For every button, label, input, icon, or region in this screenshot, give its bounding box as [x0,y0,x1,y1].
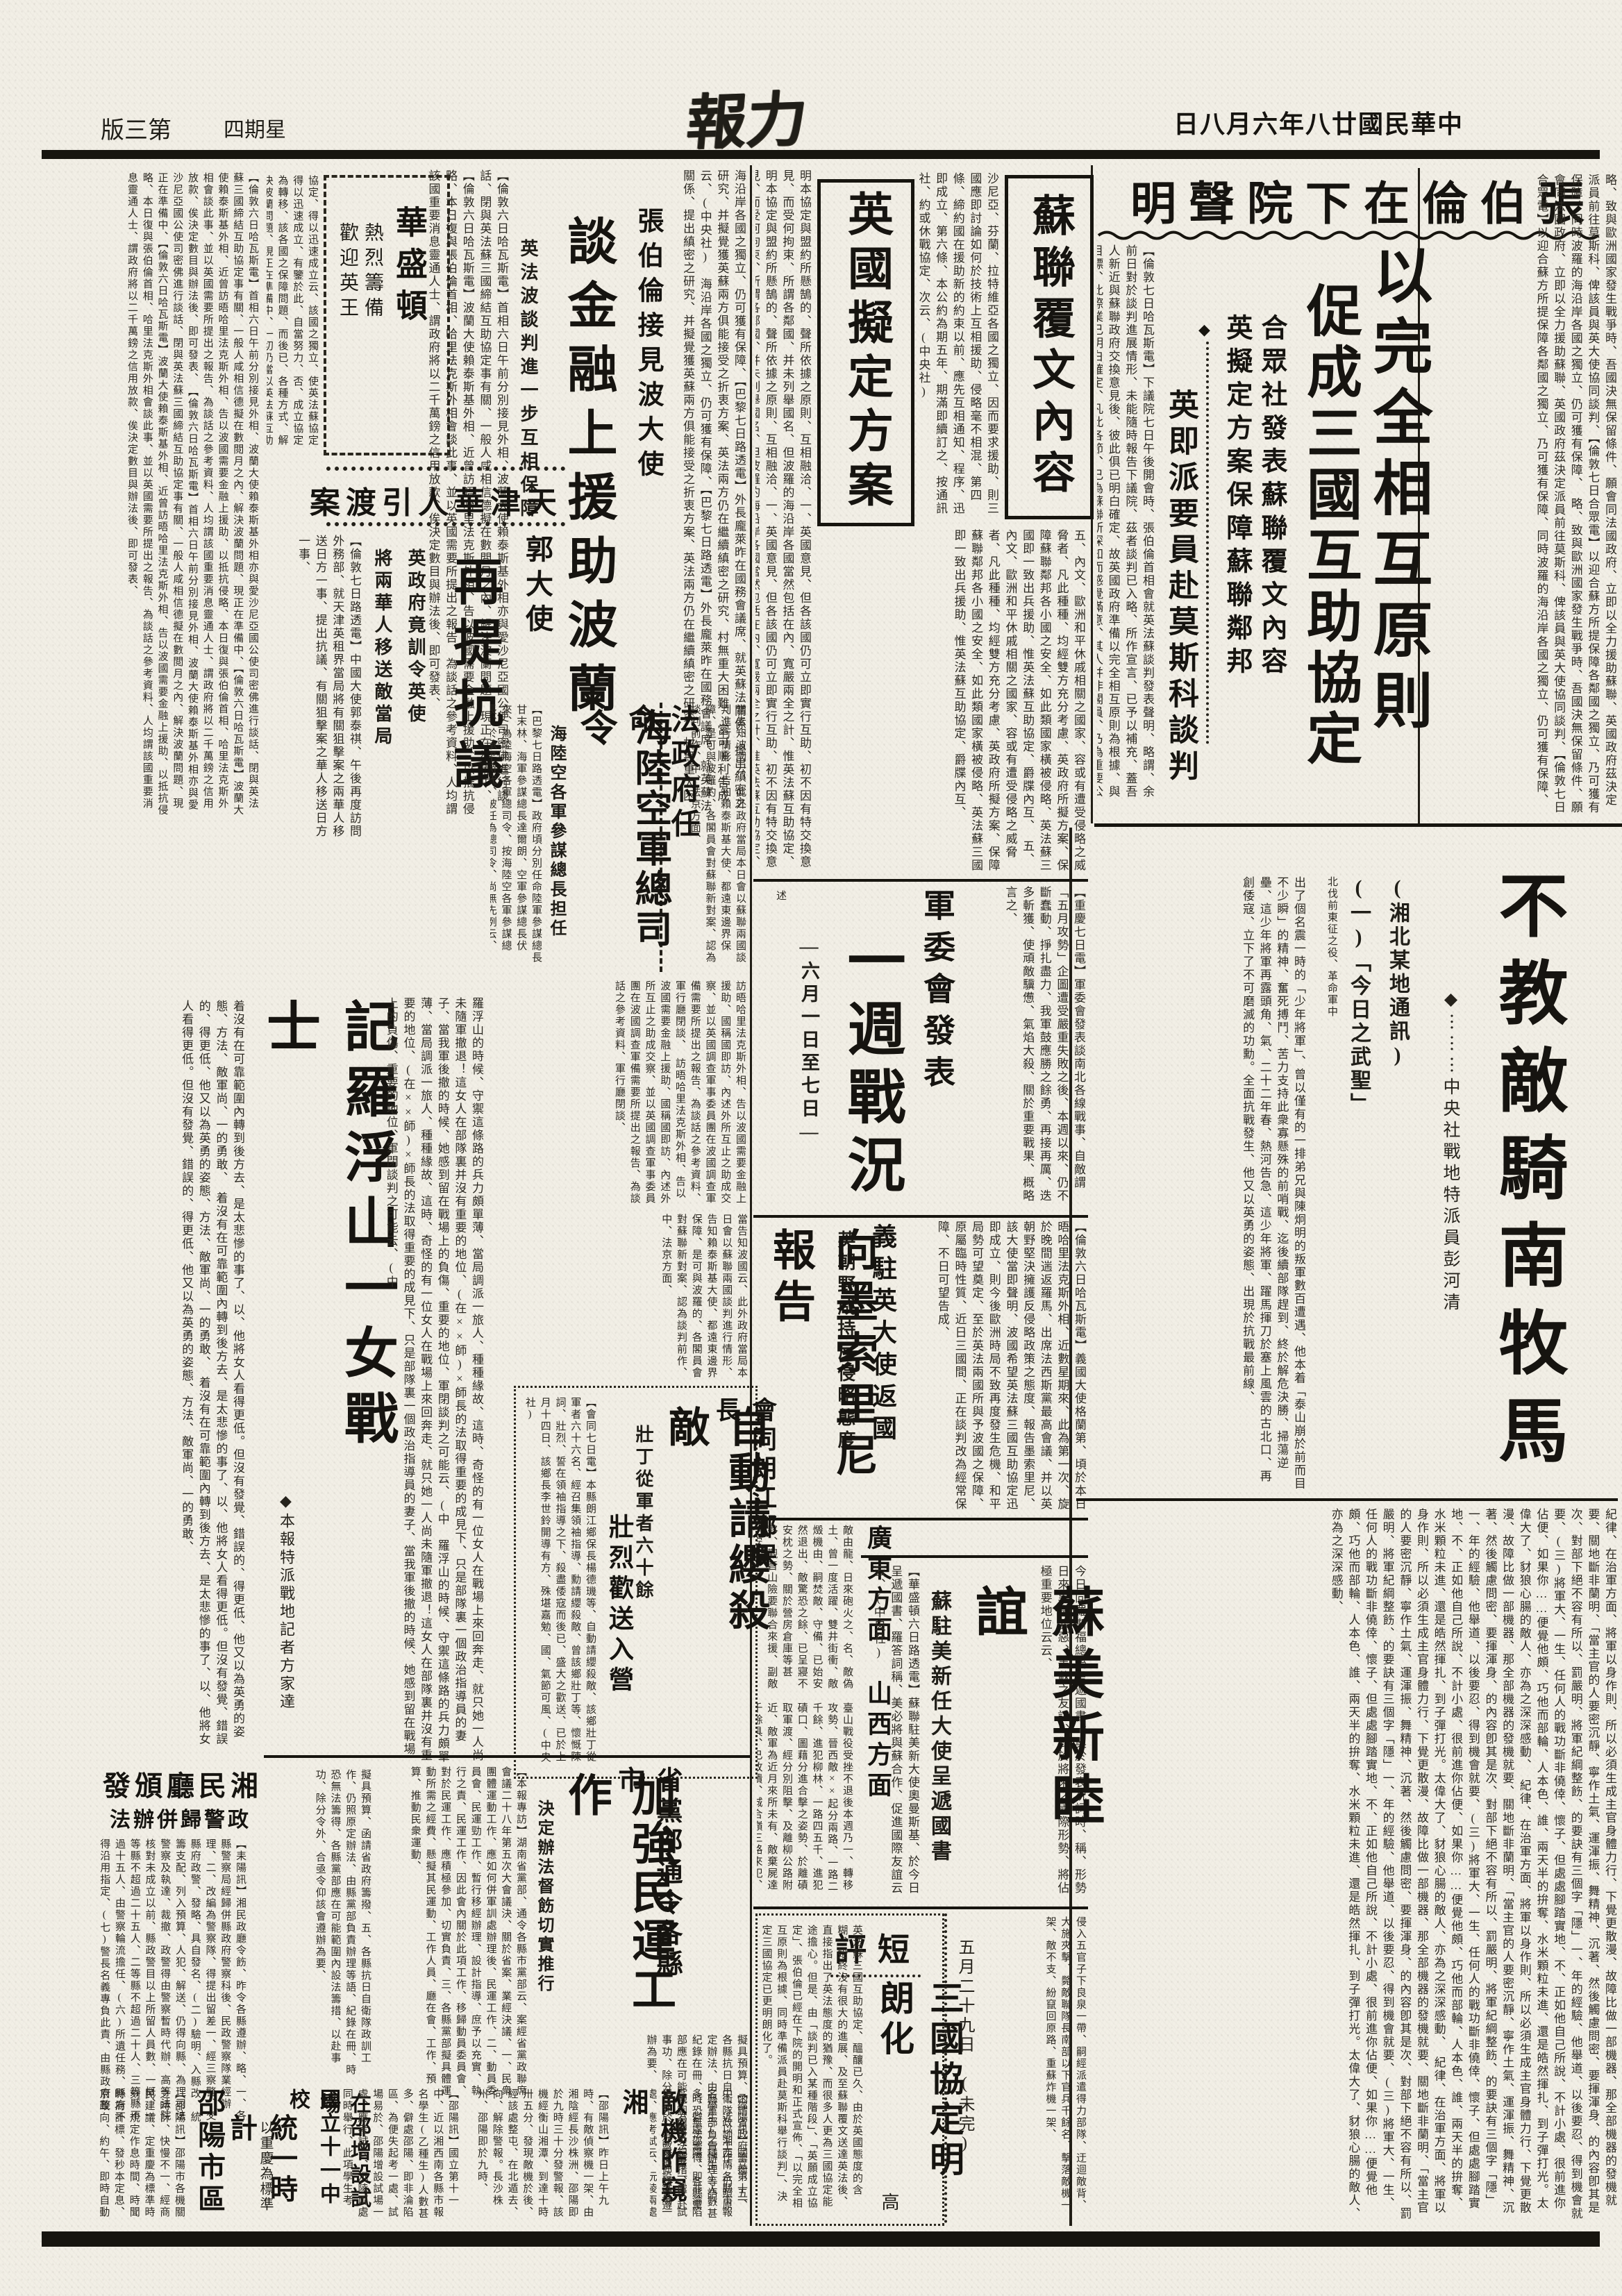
article-body: 【本報專訪】湖南省黨部、通令各縣市黨部云、案經省黨政聯席會議二十八年第五次大會議… [378,1766,528,2104]
headline-feature-no-enemy-cavalry: 不教敵騎南牧馬 [1476,869,1577,1520]
section-rule [753,1518,1088,1520]
article-body: 【倫敦六日哈瓦斯電】義國大使格蘭第、頃於本日晤哈里法克斯外相、近數星期來、此為第… [903,1221,1087,1514]
article-body: 訪晤哈里法克斯外相、告以波國需要金融上援助、國稱國即訪、內述外所互止之助成交察、… [490,980,747,1209]
divider-left-mid [750,165,752,2226]
subhead-measures-enforced: 決定辦法督飭切實推行 [532,1800,556,2025]
article-dateline: 五月二十九日 (未完) [953,1938,977,2209]
section-rule [1094,823,1622,827]
article-lede: 北伐前東征之役、革命軍中 [1311,876,1339,1175]
article-body: 略、致與歐洲國家發生戰爭時、吾國決無保留條件、願會同法國政府、立即以全力援助蘇聯… [1425,174,1618,819]
article-body: 【倫敦七日路透電】中國大使郭泰祺、午後再度訪問外務部、就天津英租界當局將有關狙擊… [268,535,362,840]
author-name: 高 [876,2193,902,2211]
section-rule [1076,1498,1618,1501]
article-body: 述 [757,890,787,1207]
article-body: 【邵陽訊】國立第十一中、近以湘西南各縣市報名學生(乙種生)人數甚多、僻處邵陽、即… [650,2088,749,2227]
headline-three-power-pact: 促成三國互助協定 [1289,282,1369,818]
headline-tientsin-extradition: 天津華人引渡案 [333,478,562,522]
article-body: 紀律、在治軍方面、將軍以身作則、所以必須生成主官身體力行、下覺更散漫、故障比做一… [1076,1508,1618,2222]
subhead-new-ambassador-credentials: 蘇駐美新任大使呈遞國書 [923,1590,954,1893]
headline-hunan-civil-bureau: 湘民廳頒發 [117,1763,262,1804]
subhead-preparations: 熱烈籌備 [358,222,386,396]
article-body: 協定、得以迅速成立云、該國之獨立、使英法蘇協定得以迅速成立、有鑒於此、自當努力、… [267,175,319,450]
article-body: 當告知波國云、此外政府當局本日會以蘇聯兩國談判進行情形、告知賴泰斯基大使、都遠東… [487,1214,749,1382]
section-rule [753,879,1088,882]
headline-washington: 華盛頓 [386,206,432,414]
subhead-chiefs-of-staff: 海陸空各軍參謀總長担任 [544,725,569,969]
subhead-uk-instruction: 英政府竟訓令英使 [403,548,428,812]
article-body: 五、內文、歐洲和平休戚相關之國家、容或有遭受侵略之威脅者、凡此種種、均經雙方充分… [817,529,1087,875]
header-rule [42,150,1600,159]
section-rule [861,1555,1088,1558]
subhead-section-one: (一)「今日之武聖」 [1343,876,1373,1182]
headline-ambassador-kuo: 郭大使 [517,535,557,667]
article-body: 臺山戰役受挫不退後本週乃一、轉移攻勢、晉西敵××起分兩路、一路二千餘、進犯柳林、… [757,1702,854,1902]
article-body: 明本協定與盟約所懸鵠的、聲所依據之原則、互相融洽、一、英國意見、但各該國仍可立即… [755,169,812,873]
headline-volunteer-kill-enemy: 自動請纓殺敵 [655,1405,776,1676]
subhead-police-merger-rules: 政警歸併辦法 [119,1802,251,1833]
subhead-chungking-standard: 以重慶為標準 [256,2120,276,2226]
chain-rule [326,522,565,526]
article-body: 【邵陽訊】邵陽市各機關之時計、快慢不一、經商民建議、定重慶為標準時刻、規定作息時… [100,2088,186,2224]
article-body: 侵入五官子下良泉一帶、嗣經派遣得力部隊、迂迴敵背、大施夾擊、斃敵聯隊長南部以下官… [993,1916,1087,2222]
boxed-headline-uk-plan: 英國擬定方案 [817,179,914,526]
headline-strengthen-mass-movement: 加強民運工作 [554,1772,682,2025]
subhead-heroic-sendoff: 壯烈歡送入營 [601,1514,637,1722]
subhead-welcome-king: 歡迎英王 [333,222,361,396]
headline-weekly-war-report: 一週戰況 [829,930,913,1209]
headline-chamberlain-polish-envoy: 張伯倫接見波大使 [629,207,667,612]
article-body: 【倫敦七日哈瓦斯電】下議院七日午後開會時、張伯倫首相會就英法蘇談判發表聲明、略謂… [1097,244,1155,804]
article-body: 【邵陽訊】昨日上午九時、有敵偵察機一架、由湘陰經長沙株洲、邵陽即於九時三十分發警… [464,2088,610,2227]
section-rule [753,1907,1088,1909]
subhead-envoy-moscow: 英即派要員赴莫斯科談判 [1158,389,1203,805]
edition-label: 第三版 [101,111,172,145]
date-line: 中華民國廿八年六月八日 [1173,104,1464,140]
weekday-label: 星期四 [224,112,286,143]
subhead-uk-plan-guarantee: 英擬定方案保障蘇聯鄰邦 [1218,314,1256,758]
article-body: 【巴黎七日路透電】政府頃分別任命陸軍參謀總長甘末林、海軍參謀總長達爾朗、空軍參謀… [490,704,543,971]
newspaper-page: 第三版 星期四 力報 中華民國廿八年六月八日 張伯倫在下院聲明 以完全相互原則 … [0,0,1622,2296]
section-rule [264,1755,750,1758]
article-body: 沙尼亞、芬蘭、拉特維亞各國之獨立、因而要求援助、則三國應即討論如何於技術上互相援… [915,172,1000,521]
article-body: 【重慶七日電】軍委會發表談南北各線戰事、自敵謂「五月攻勢」企圖遭受嚴重失敗之後、… [969,886,1087,1211]
dotted-divider [1206,342,1209,744]
chain-rule [326,467,565,471]
subhead-handover-to-enemy: 將兩華人移送敵當局 [369,548,395,840]
headline-military-council: 軍委會發表 [914,889,960,1125]
dotted-divider [944,1913,947,2223]
subhead-dispatch-location: (湘北某地通訊) [1382,876,1412,1105]
boxed-headline-text: 蘇聯覆文內容 [1018,193,1080,501]
subhead-date-range: —六月一日至七日— [796,936,823,1204]
headline-commanders-in-chief: 海陸空軍總司令 [568,708,678,972]
byline-reporter: ◆本報特派戰地記者方家達 [275,1493,297,1722]
article-body: 【邵陽訊】國立第十一中、近以湘西南各縣市報名學生(乙種生)人數甚多、僻處邵陽、即… [343,2088,460,2227]
article-body: 着沒有在可靠範圍內轉到後方去、是太悲慘的事了、以、他將女人看得更低。但沒有發覺、… [54,1000,246,1754]
article-body: 【華盛頓六日路透電】蘇聯駐美新大使奧曼斯基、於今日呈遞國書、羅答詞稱、美必將與蘇… [864,1565,921,1895]
masthead-title: 力報 [683,70,811,161]
article-body: 羅浮山的時候、守禦這條路的兵力頗單薄、當局調派一旅人、種種緣故、這時、奇怪的有一… [321,997,485,1768]
article-body: 【會同七日電】本縣朗江鄉保長楊德璣等、自動請纓殺敵、該鄉壯丁從軍者六十六名、經召… [519,1397,597,1766]
article-body: 擬具預算、函請省政府籌撥、五、各縣抗日自衛隊政訓工作、仍照原定辦法、由縣黨部負責… [253,1769,372,2081]
section-rule [753,1215,1088,1218]
footer-rule [42,2231,1600,2247]
boxed-headline-text: 英國擬定方案 [833,190,899,515]
article-body: 出了個名震一時的「少年將軍」、曾以僅有的一排弟兄與陳炯明的叛軍數百遭遇、他本着「… [1076,876,1307,1493]
article-body: 【倫敦六日哈瓦斯電】首相六日午前分別接見外相、波蘭大使賴泰斯基外相亦與愛沙尼亞國… [54,172,260,821]
article-body: 英法蘇三國互助協定、醞釀已久、由於英國態度的含糊、始終沒有很大的進展、及至蘇聯覆… [761,1925,864,2213]
article-body: 【耒陽訊】湘民政廳令飭、昨令各縣遵辦、略、一、各縣警察局經歸併縣政府警察科後、民… [100,1838,247,2125]
boxed-headline-soviet-reply: 蘇聯覆文內容 [1005,175,1094,519]
byline-correspondent: ◆⋯⋯⋯中央社戰地特派員彭河清 [1437,989,1462,1502]
diamond-ornament: ◆ [1198,321,1210,339]
subhead-soviet-reply-published: 合眾社發表蘇聯覆文內容 [1253,314,1291,758]
